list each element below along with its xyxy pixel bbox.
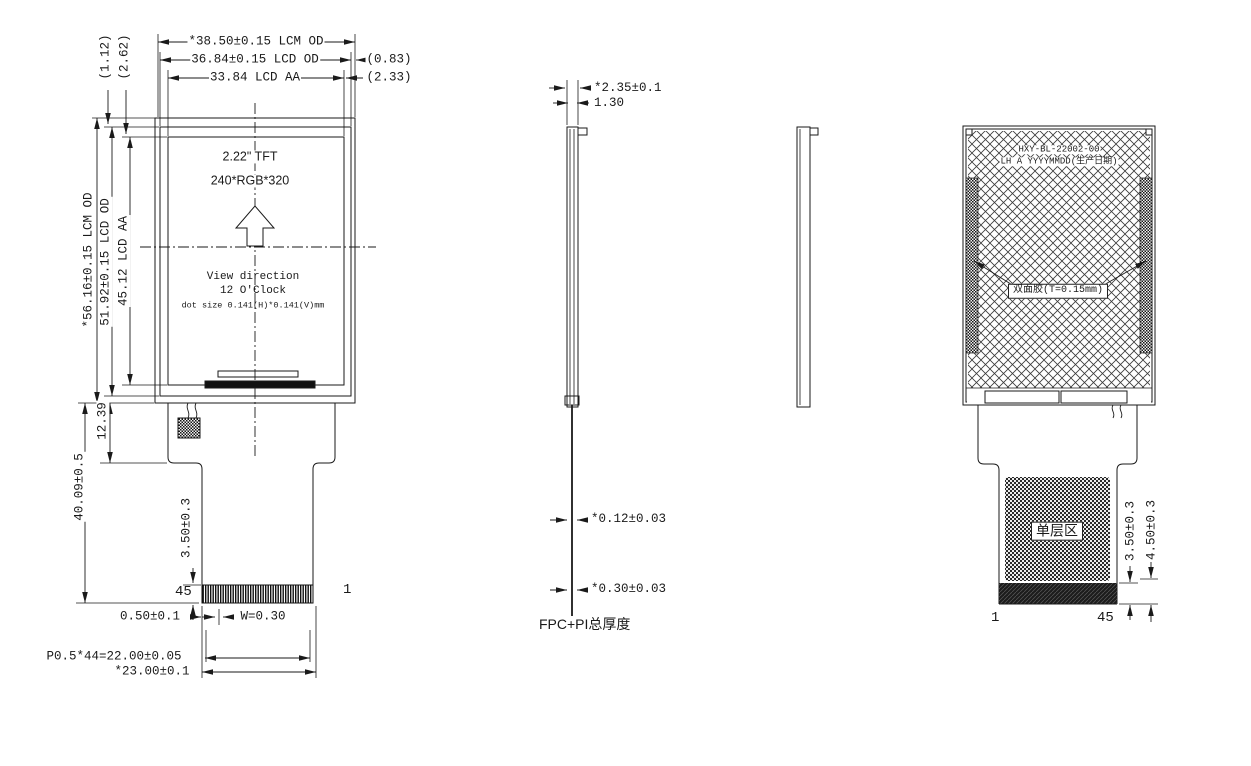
dim-edge-margin: 0.50±0.1 bbox=[119, 610, 181, 623]
part-number-label: HXY-BL-22002-00 bbox=[1017, 145, 1100, 154]
dim-finger-depth-back: 3.50±0.3 bbox=[1124, 500, 1137, 562]
dim-lcd-aa-height: 45.12 LCD AA bbox=[117, 215, 130, 307]
dim-fpc-thickness-1: *0.12±0.03 bbox=[590, 513, 667, 526]
view-direction-line1: View direction bbox=[206, 272, 300, 284]
dim-gap-aa: (2.33) bbox=[365, 71, 412, 84]
dim-vgap-aa: (2.62) bbox=[118, 33, 131, 80]
dim-stiffener-depth-back: 4.50±0.3 bbox=[1145, 499, 1158, 561]
adhesive-label: 双面胶(T=0.15mm) bbox=[1008, 284, 1108, 299]
dim-pin-width: W=0.30 bbox=[239, 610, 286, 623]
view-direction-line2: 12 O'Clock bbox=[219, 286, 287, 298]
dim-lcd-od-height: 51.92±0.15 LCD OD bbox=[99, 197, 112, 327]
dim-fpc-thickness-2: *0.30±0.03 bbox=[590, 583, 667, 596]
single-layer-label: 单层区 bbox=[1031, 522, 1083, 541]
dim-vgap-lcd: (1.12) bbox=[99, 33, 112, 80]
pin-1-label-back: 1 bbox=[990, 611, 1000, 626]
fpc-pi-thickness-caption: FPC+PI总厚度 bbox=[538, 617, 631, 632]
date-code-label: LH A YYYYMMDD(生产日期) bbox=[999, 157, 1118, 166]
pin-45-label-front: 45 bbox=[174, 585, 193, 600]
dim-lcd-aa-width: 33.84 LCD AA bbox=[209, 71, 301, 84]
dim-connector-width: *23.00±0.1 bbox=[113, 665, 190, 678]
dim-gap-lcd: (0.83) bbox=[365, 53, 412, 66]
pin-1-label-front: 1 bbox=[342, 583, 352, 598]
dot-size-label: dot size 0.141(H)*0.141(V)mm bbox=[181, 302, 326, 311]
screen-size-label: 2.22" TFT bbox=[222, 150, 279, 163]
dim-lcm-od-width: *38.50±0.15 LCM OD bbox=[187, 35, 324, 48]
drawing-linework bbox=[0, 0, 1251, 766]
dim-pin-pitch: P0.5*44=22.00±0.05 bbox=[45, 650, 182, 663]
dim-finger-depth-front: 3.50±0.3 bbox=[180, 497, 193, 559]
pin-45-label-back: 45 bbox=[1096, 611, 1115, 626]
screen-resolution-label: 240*RGB*320 bbox=[210, 174, 291, 187]
dim-fpc-length: 40.09±0.5 bbox=[73, 452, 86, 522]
dim-lcm-od-height: *56.16±0.15 LCM OD bbox=[82, 191, 95, 328]
dim-fpc-neck: 12.39 bbox=[96, 401, 109, 441]
lcd-module-engineering-drawing: *38.50±0.15 LCM OD 36.84±0.15 LCD OD 33.… bbox=[0, 0, 1251, 766]
dim-lcd-od-width: 36.84±0.15 LCD OD bbox=[190, 53, 320, 66]
dim-panel-thickness: 1.30 bbox=[593, 97, 625, 110]
dim-module-thickness: *2.35±0.1 bbox=[593, 82, 663, 95]
